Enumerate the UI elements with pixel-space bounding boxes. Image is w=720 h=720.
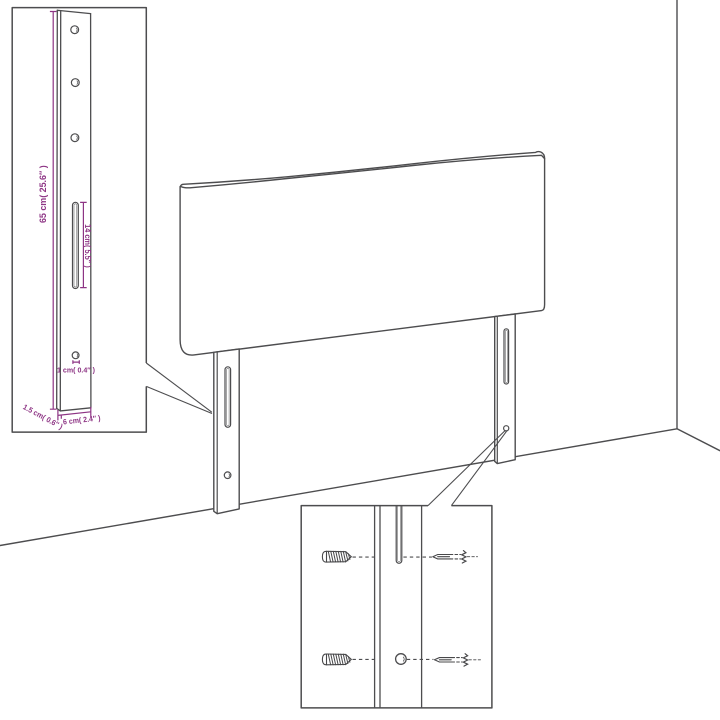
svg-text:1 cm( 0.4″ ): 1 cm( 0.4″ ) — [57, 365, 95, 374]
svg-text:65 cm( 25.6″ ): 65 cm( 25.6″ ) — [38, 165, 48, 223]
svg-text:14 cm( 5.5″ ): 14 cm( 5.5″ ) — [83, 224, 92, 268]
